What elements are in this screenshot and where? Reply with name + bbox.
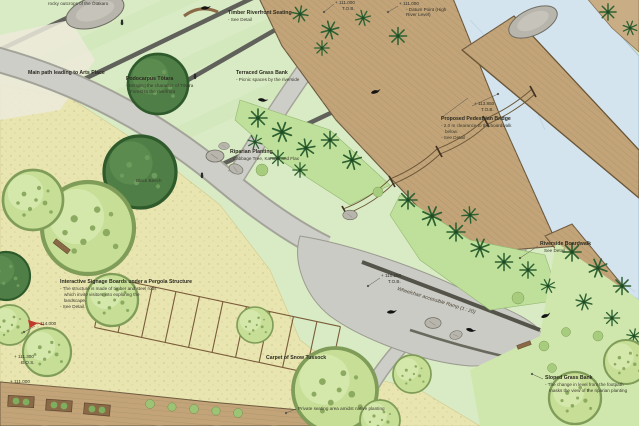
datum-level: + 111.000 - Datum Point (High River Leve… [399,1,446,18]
lower-path-level-value: + 111.000 [10,379,30,385]
sloped-bank-note: masks the view of the riparian planting [545,388,627,394]
black-beech-label: Black Beech [136,178,162,184]
totara-note: Forest to the riverfront [126,89,193,95]
riparian-title: Riparian Planting [230,149,299,156]
private-seating-label: Private seating area amidst native plant… [298,406,385,412]
pergola-title: Interactive Signage Boards under a Pergo… [60,279,192,286]
pedestrian-bridge-annotation: Proposed Pedestrian Bridge - 2.0 m clear… [441,116,511,141]
upper-lawn-level: + 114.000 [36,321,56,327]
rocky-outcrops-text: rocky outcrops of the Ōtākaro [48,1,108,7]
timber-seating-note: - See Detail [228,17,292,23]
main-path-text: Main path leading to Arts Place [28,70,105,77]
pergola-annotation: Interactive Signage Boards under a Pergo… [60,279,192,310]
timber-seating-title: Timber Riverfront Seating [228,10,292,17]
main-path-label: Main path leading to Arts Place [28,70,105,77]
totara-annotation: Podocarpus Tōtara - Bringing the charact… [126,76,193,95]
riverside-boardwalk-annotation: Riverside Boardwalk See Detail [540,241,591,254]
sloped-bank-title: Sloped Grass Bank [545,375,627,382]
riparian-note: - Cabbage Tree, Kanuka and Flax [230,156,299,162]
bridge-level-ref: T.O.B. [474,107,494,113]
terraced-bank-note: - Picnic spaces by the riverside [236,77,299,83]
ramp-level: + 110.250 T.O.B. [381,273,401,284]
annotation-layer: rocky outcrops of the Ōtākaro Main path … [0,0,639,426]
timber-seating-annotation: Timber Riverfront Seating - See Detail [228,10,292,23]
private-seating-text: Private seating area amidst native plant… [298,406,385,412]
bridge-level: + 113.850 T.O.B. [474,101,494,112]
steps-level-ref: B.O.S. [14,360,35,366]
pedestrian-bridge-note: - See Detail [441,135,511,141]
totara-note: - Bringing the character of Tōtara [126,83,193,89]
bank-top-level-ref: T.O.B. [335,6,355,12]
pedestrian-bridge-title: Proposed Pedestrian Bridge [441,116,511,123]
upper-lawn-level-value: + 114.000 [36,321,56,327]
totara-title: Podocarpus Tōtara [126,76,193,83]
lower-path-level: + 111.000 [10,379,30,385]
rocky-outcrops-label: rocky outcrops of the Ōtākaro [48,1,108,7]
datum-level-note: River Level) [399,12,446,18]
ramp-label: Wheelchair accessible Ramp (1 : 20) [396,286,476,316]
steps-level-value: + 111.300 [14,354,35,360]
bridge-level-value: + 113.850 [474,101,494,107]
sloped-bank-annotation: Sloped Grass Bank - The change in level … [545,375,627,394]
steps-level: + 111.300 B.O.S. [14,354,35,365]
ramp-text: Wheelchair accessible Ramp (1 : 20) [396,286,476,316]
snow-tussock-label: Carpet of Snow Tussock [266,355,326,362]
terraced-bank-annotation: Terraced Grass Bank - Picnic spaces by t… [236,70,299,83]
ramp-level-value: + 110.250 [381,273,401,279]
pedestrian-bridge-note: - 2.0 m clearance to the boardwalk [441,123,511,129]
bank-top-level: + 111.000 T.O.B. [335,0,355,11]
riparian-annotation: Riparian Planting - Cabbage Tree, Kanuka… [230,149,299,162]
landscape-masterplan: rocky outcrops of the Ōtākaro Main path … [0,0,639,426]
pergola-note: - See Detail. [60,304,192,310]
riverside-boardwalk-title: Riverside Boardwalk [540,241,591,248]
riverside-boardwalk-note: See Detail [540,248,591,254]
terraced-bank-title: Terraced Grass Bank [236,70,299,77]
ramp-level-ref: T.O.B. [381,279,401,285]
sloped-bank-note: - The change in level from the footpath [545,382,627,388]
black-beech-text: Black Beech [136,178,162,184]
bank-top-level-value: + 111.000 [335,0,355,6]
snow-tussock-text: Carpet of Snow Tussock [266,355,326,362]
